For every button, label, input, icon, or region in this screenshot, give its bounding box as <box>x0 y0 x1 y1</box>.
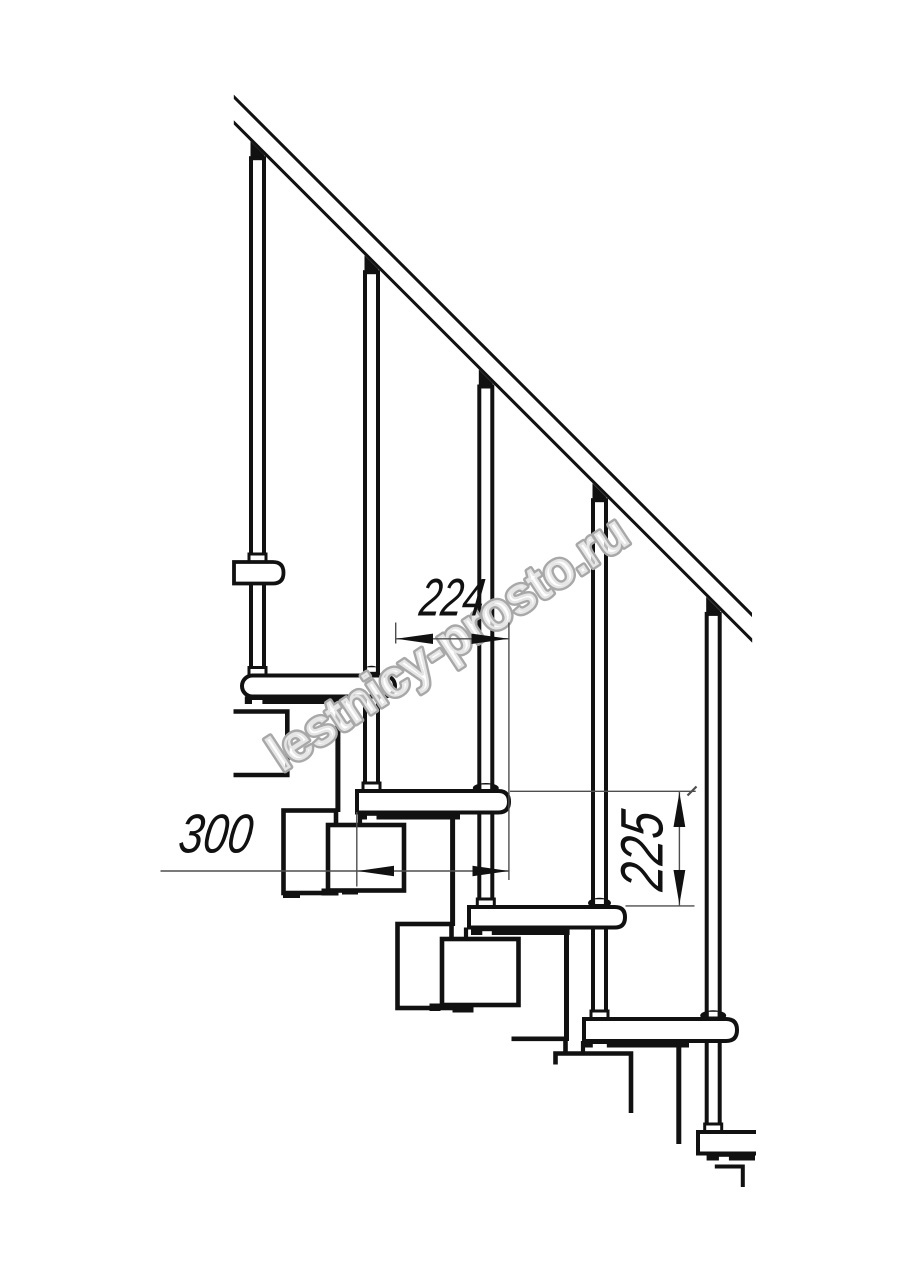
svg-text:224: 224 <box>416 569 489 628</box>
svg-text:300: 300 <box>175 803 257 865</box>
svg-text:225: 225 <box>608 806 676 895</box>
